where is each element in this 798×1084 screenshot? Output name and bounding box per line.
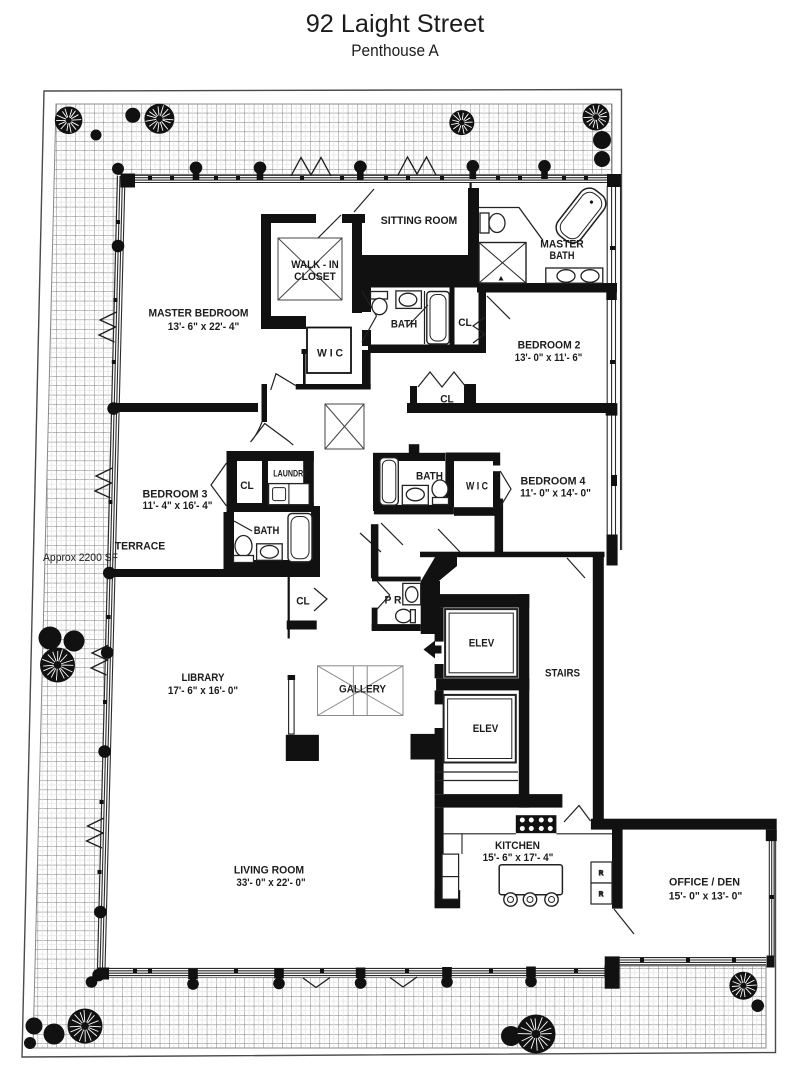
svg-text:SITTING ROOM: SITTING ROOM (381, 215, 458, 227)
svg-text:W I C: W I C (466, 481, 488, 493)
svg-text:ELEV: ELEV (469, 638, 495, 650)
svg-text:CL: CL (240, 480, 254, 492)
svg-text:13'- 0" x 11'- 6": 13'- 0" x 11'- 6" (515, 352, 583, 364)
svg-text:BATH: BATH (550, 250, 575, 262)
svg-text:33'- 0" x 22'- 0": 33'- 0" x 22'- 0" (236, 877, 305, 889)
svg-text:LIVING ROOM: LIVING ROOM (234, 865, 304, 877)
svg-text:CL: CL (458, 317, 472, 329)
svg-text:BEDROOM 2: BEDROOM 2 (518, 340, 581, 352)
svg-text:KITCHEN: KITCHEN (495, 840, 540, 852)
svg-text:BEDROOM 4: BEDROOM 4 (521, 476, 587, 488)
svg-text:LAUNDRY: LAUNDRY (273, 469, 308, 479)
svg-text:11'- 0" x 14'- 0": 11'- 0" x 14'- 0" (520, 488, 591, 500)
svg-text:STAIRS: STAIRS (545, 668, 580, 680)
svg-text:11'- 4" x 16'- 4": 11'- 4" x 16'- 4" (143, 500, 213, 512)
svg-text:BATH: BATH (254, 525, 280, 537)
svg-text:15'- 6" x 17'- 4": 15'- 6" x 17'- 4" (483, 852, 554, 864)
svg-text:P R: P R (385, 595, 402, 607)
svg-text:OFFICE / DEN: OFFICE / DEN (669, 877, 740, 889)
svg-text:15'- 0" x 13'- 0": 15'- 0" x 13'- 0" (669, 891, 743, 903)
svg-text:92 Laight Street: 92 Laight Street (306, 10, 485, 38)
svg-text:BATH: BATH (416, 471, 443, 483)
svg-text:Penthouse A: Penthouse A (351, 41, 439, 60)
svg-text:R: R (599, 871, 604, 877)
svg-text:CLOSET: CLOSET (294, 271, 336, 283)
svg-text:MASTER: MASTER (540, 239, 584, 251)
svg-text:CL: CL (296, 596, 310, 608)
svg-text:MASTER BEDROOM: MASTER BEDROOM (149, 308, 249, 320)
svg-text:Approx 2200 SF: Approx 2200 SF (43, 552, 118, 564)
svg-text:GALLERY: GALLERY (339, 684, 387, 696)
svg-text:WALK - IN: WALK - IN (291, 259, 339, 271)
svg-text:CL: CL (440, 394, 454, 406)
svg-text:ELEV: ELEV (473, 723, 499, 735)
svg-text:LIBRARY: LIBRARY (182, 672, 226, 684)
svg-text:17'- 6" x 16'- 0": 17'- 6" x 16'- 0" (168, 685, 238, 697)
svg-text:TERRACE: TERRACE (115, 541, 166, 553)
svg-text:W I C: W I C (317, 348, 343, 360)
svg-text:R: R (599, 892, 604, 898)
svg-text:13'- 6" x 22'- 4": 13'- 6" x 22'- 4" (168, 321, 240, 333)
svg-text:BEDROOM 3: BEDROOM 3 (143, 489, 208, 501)
